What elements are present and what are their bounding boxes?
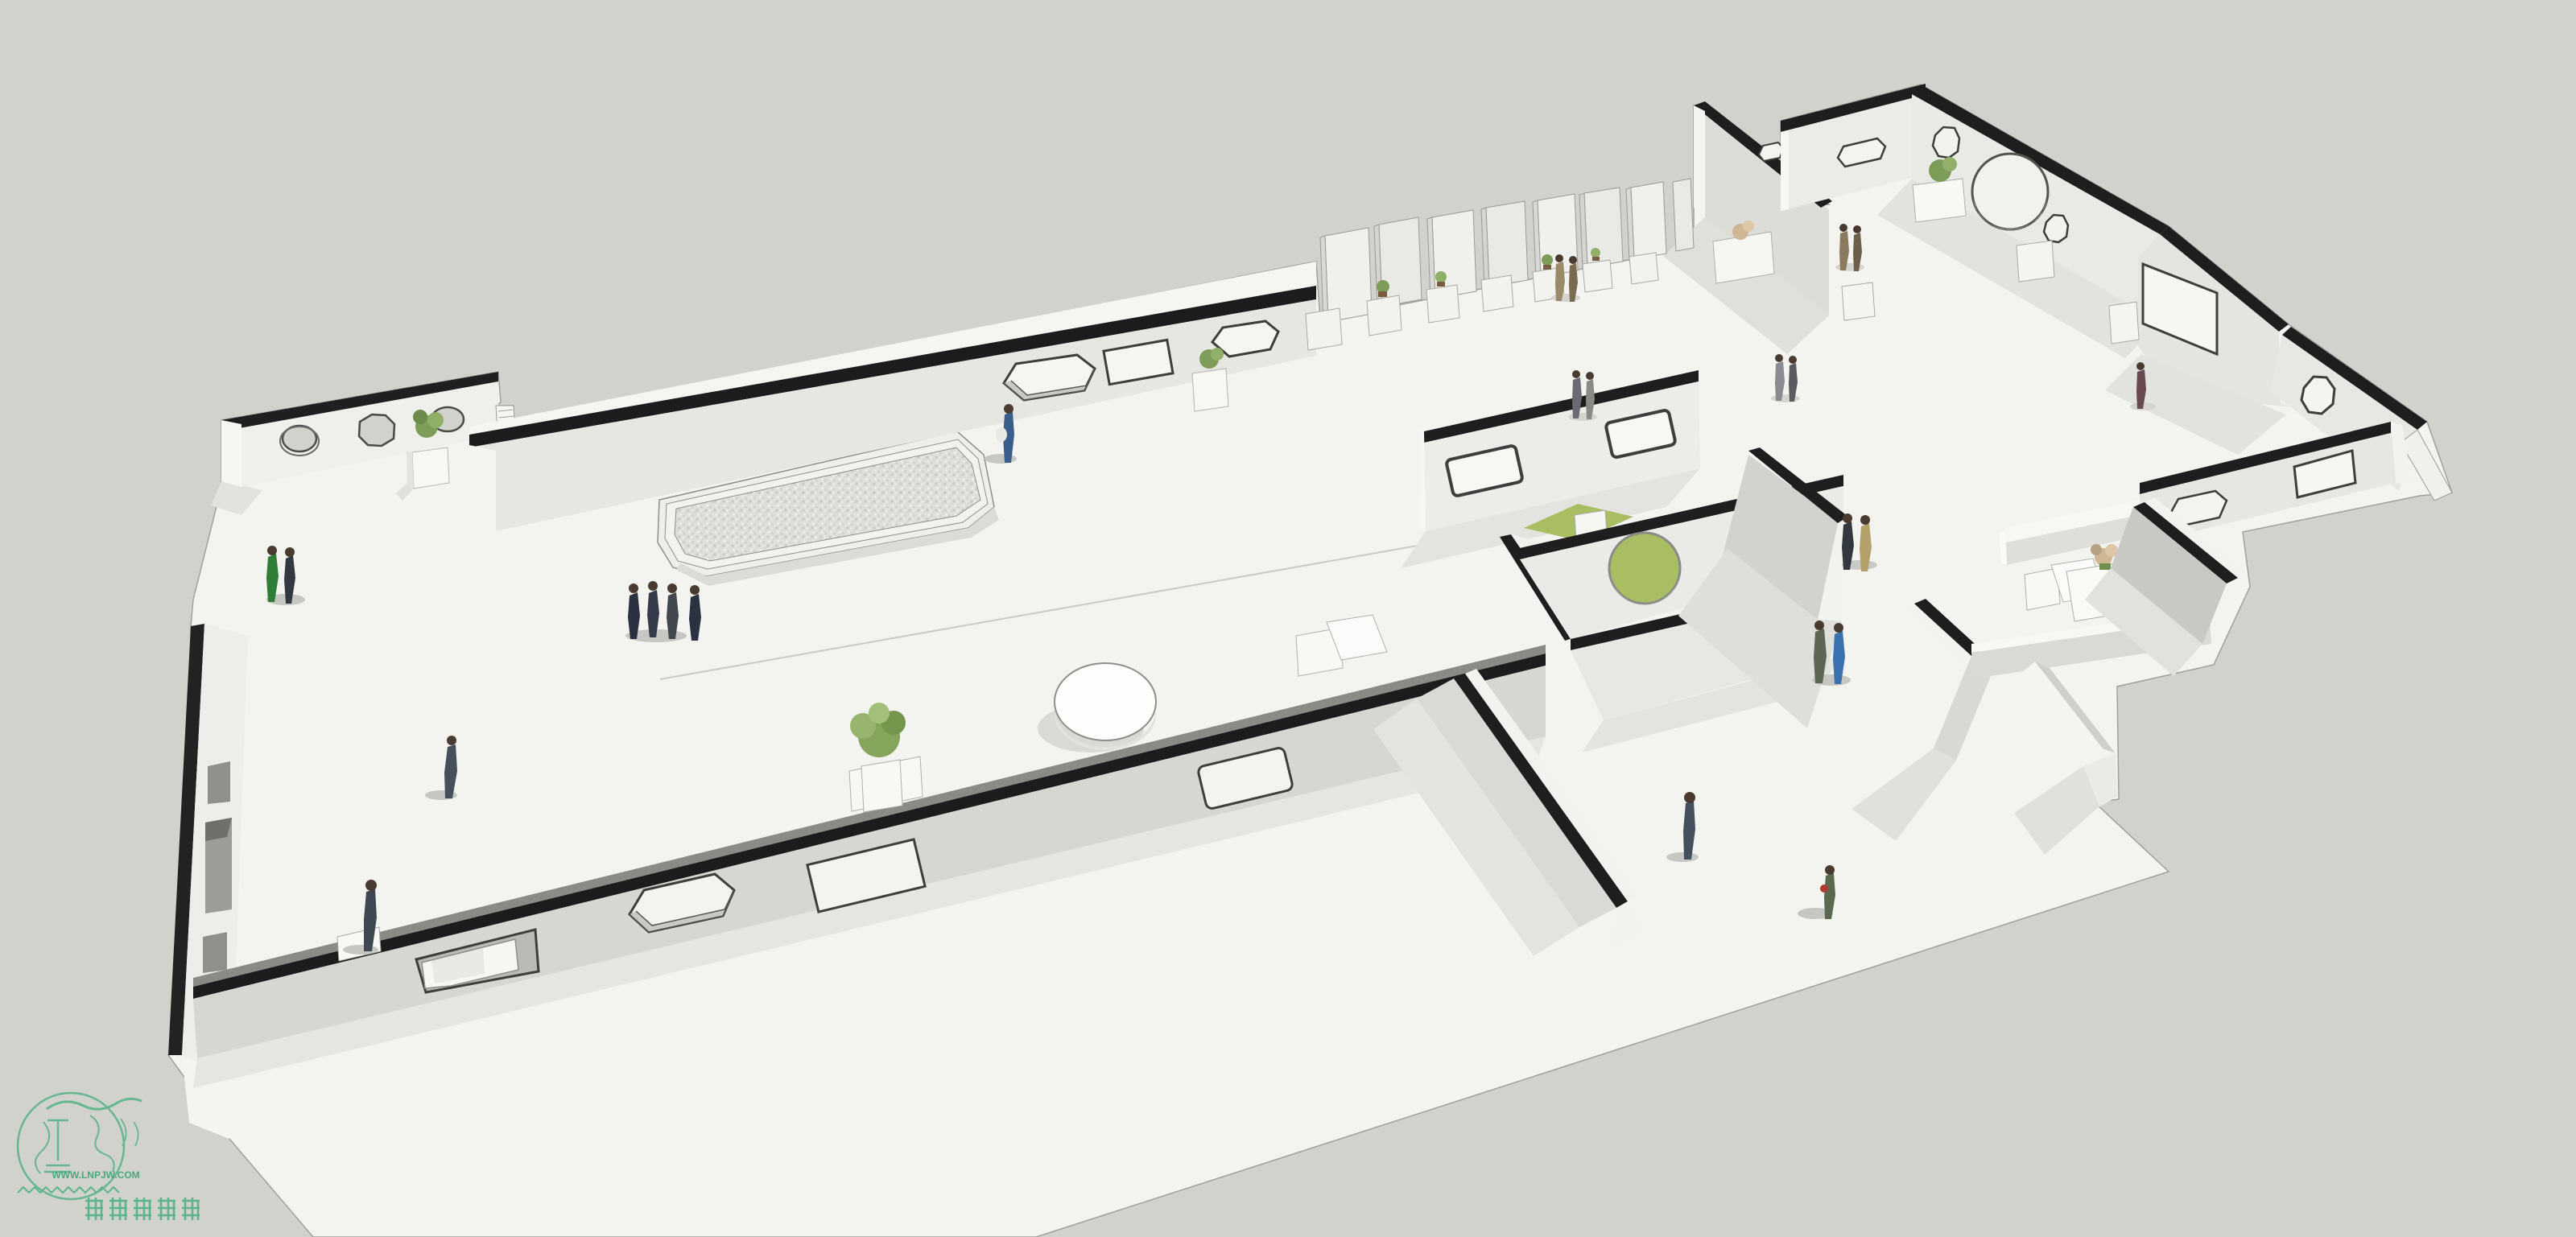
svg-text:WWW.LNPJW.COM: WWW.LNPJW.COM	[52, 1169, 139, 1181]
